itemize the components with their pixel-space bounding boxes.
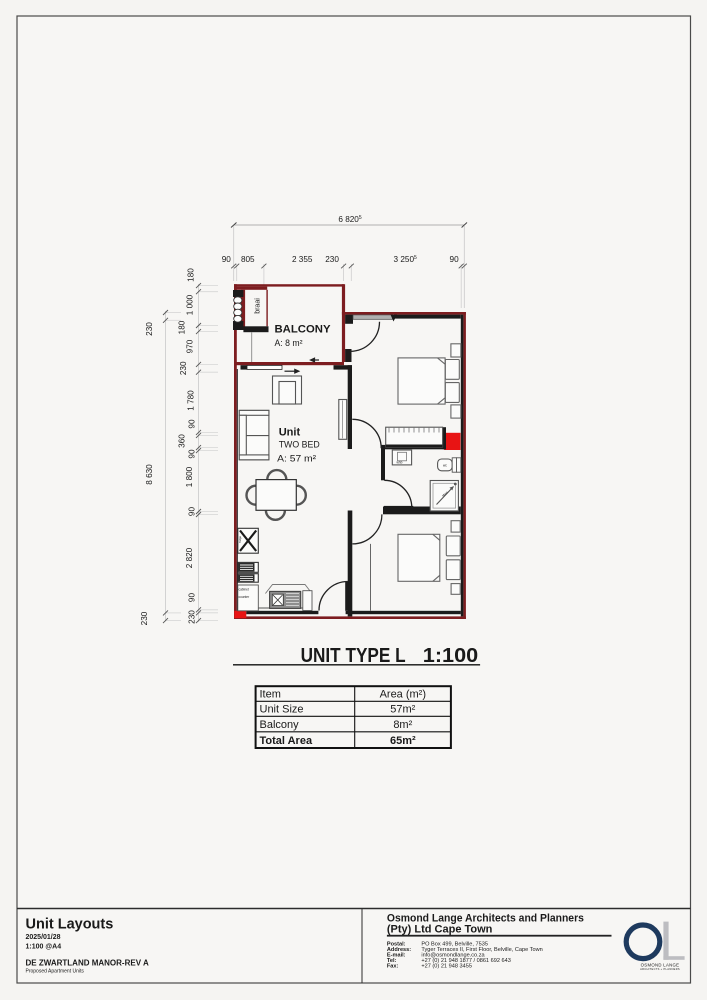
- svg-text:+27 (0) 21 948 3455: +27 (0) 21 948 3455: [421, 964, 472, 970]
- svg-text:Proposed Apartment Units: Proposed Apartment Units: [26, 969, 85, 975]
- svg-text:1:100: 1:100: [423, 644, 478, 667]
- svg-text:Unit Size: Unit Size: [260, 704, 304, 716]
- svg-text:8 630: 8 630: [145, 464, 154, 485]
- svg-text:wc: wc: [443, 464, 447, 468]
- svg-text:1 780: 1 780: [187, 390, 196, 411]
- svg-text:360: 360: [178, 434, 187, 448]
- svg-text:2 820: 2 820: [185, 547, 194, 568]
- svg-text:braai: braai: [255, 298, 262, 314]
- svg-text:A: 8 m²: A: 8 m²: [275, 338, 303, 348]
- svg-text:805: 805: [241, 255, 255, 264]
- svg-text:1 800: 1 800: [185, 466, 194, 487]
- svg-text:Area (m²): Area (m²): [380, 689, 426, 701]
- svg-text:970: 970: [186, 339, 195, 353]
- svg-text:8m²: 8m²: [393, 719, 412, 731]
- svg-text:90: 90: [188, 593, 197, 603]
- svg-text:2 355: 2 355: [292, 255, 313, 264]
- svg-text:Unit: Unit: [279, 427, 301, 439]
- svg-text:BALCONY: BALCONY: [275, 324, 331, 336]
- svg-text:Item: Item: [260, 689, 281, 701]
- svg-text:230: 230: [188, 610, 197, 624]
- svg-text:1 000: 1 000: [186, 294, 195, 315]
- svg-text:230: 230: [145, 322, 154, 336]
- svg-text:6 8205: 6 8205: [338, 215, 362, 224]
- svg-text:90: 90: [450, 255, 460, 264]
- svg-text:fridge: fridge: [238, 536, 242, 543]
- svg-text:ARCHITECTS + PLANNERS: ARCHITECTS + PLANNERS: [640, 967, 680, 971]
- svg-text:counter: counter: [239, 595, 251, 599]
- svg-text:(Pty) Ltd Cape Town: (Pty) Ltd Cape Town: [387, 924, 493, 936]
- svg-text:TWO BED: TWO BED: [279, 440, 320, 450]
- svg-text:3 2505: 3 2505: [394, 255, 418, 264]
- svg-text:230: 230: [140, 611, 149, 625]
- svg-text:180: 180: [187, 268, 196, 282]
- svg-text:Total Area: Total Area: [260, 735, 313, 747]
- svg-text:90: 90: [188, 507, 197, 517]
- svg-text:65m²: 65m²: [390, 735, 416, 747]
- svg-text:180: 180: [178, 320, 187, 334]
- svg-text:90: 90: [188, 419, 197, 429]
- svg-text:230: 230: [179, 361, 188, 375]
- svg-text:cabinet: cabinet: [239, 588, 249, 592]
- svg-text:Fax:: Fax:: [387, 964, 399, 970]
- svg-text:90: 90: [222, 255, 232, 264]
- svg-text:Balcony: Balcony: [260, 719, 300, 731]
- svg-text:DE ZWARTLAND MANOR-REV A: DE ZWARTLAND MANOR-REV A: [26, 959, 149, 968]
- svg-text:230: 230: [325, 255, 339, 264]
- svg-text:whb: whb: [397, 461, 403, 465]
- svg-text:1:100 @A4: 1:100 @A4: [26, 944, 62, 951]
- svg-text:Unit Layouts: Unit Layouts: [26, 917, 114, 933]
- svg-text:57m²: 57m²: [390, 704, 415, 716]
- svg-text:UNIT TYPE L: UNIT TYPE L: [301, 644, 406, 667]
- svg-text:A: 57 m²: A: 57 m²: [277, 454, 316, 464]
- svg-text:90: 90: [188, 449, 197, 459]
- svg-text:2025/01/28: 2025/01/28: [26, 934, 61, 941]
- svg-text:OSMOND LANGE: OSMOND LANGE: [641, 963, 680, 968]
